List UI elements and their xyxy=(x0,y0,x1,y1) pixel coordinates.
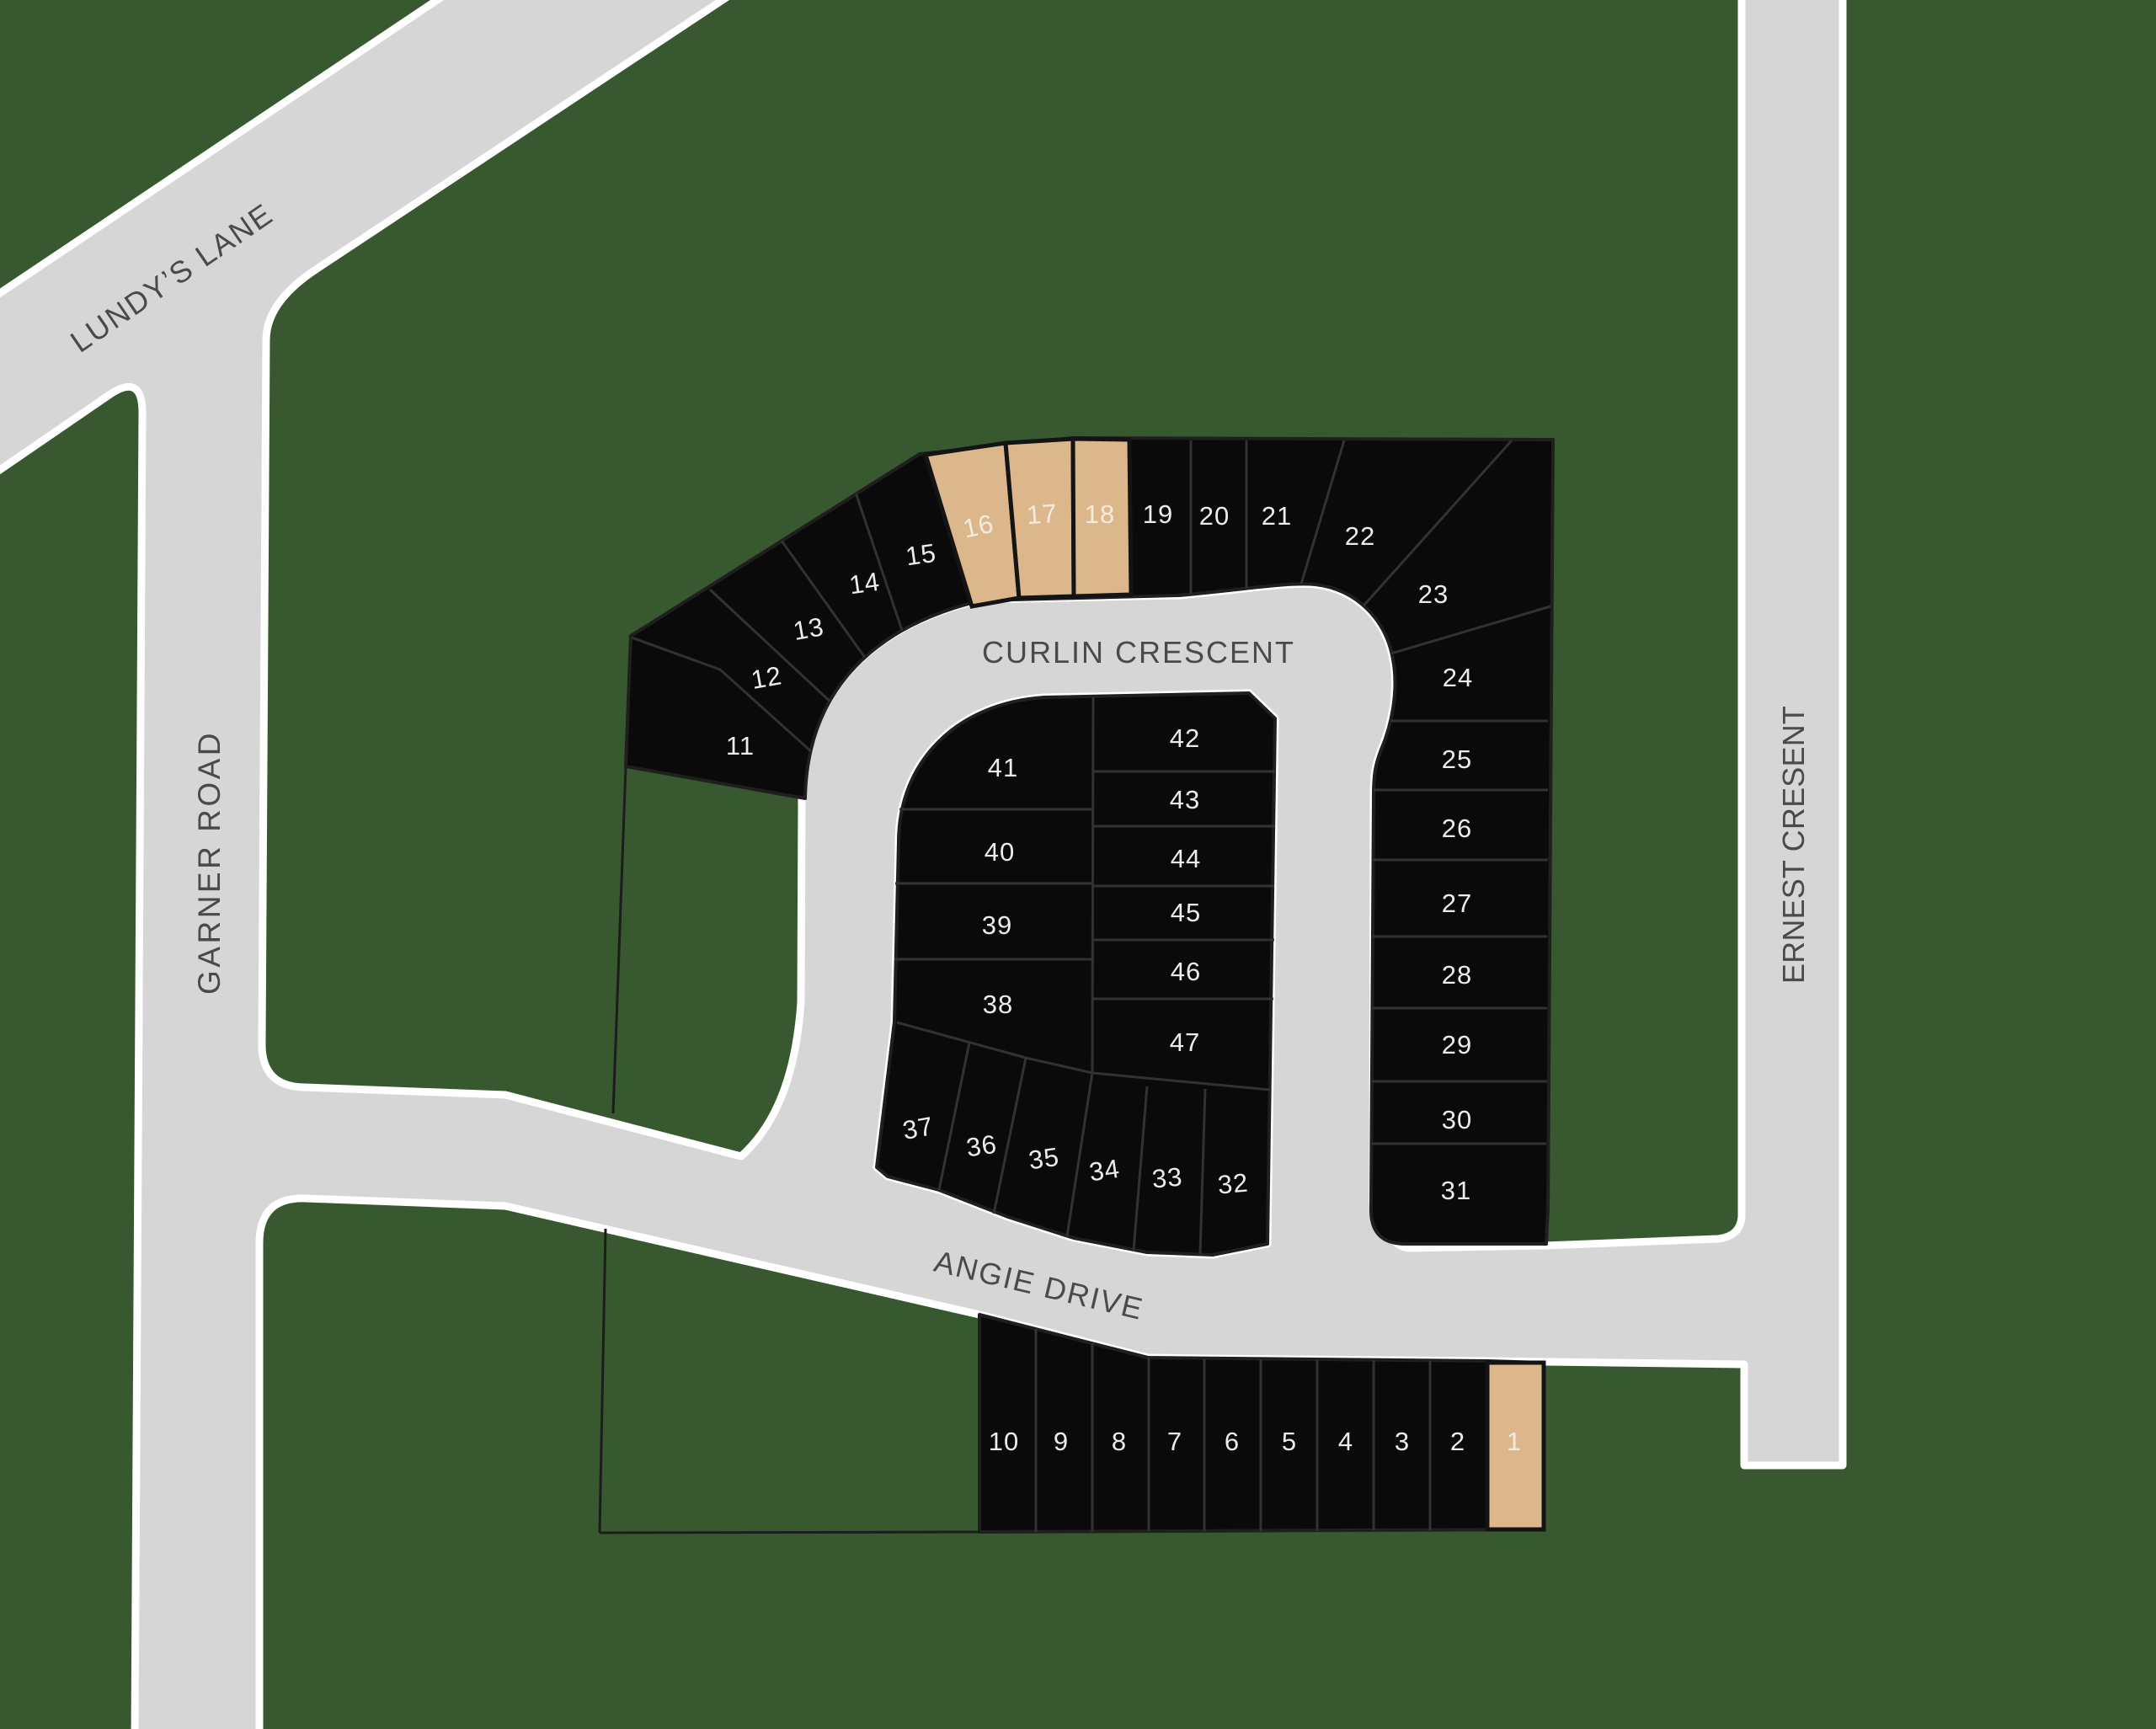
svg-text:4: 4 xyxy=(1338,1427,1353,1456)
svg-text:44: 44 xyxy=(1171,844,1201,873)
svg-text:12: 12 xyxy=(749,660,784,695)
svg-text:36: 36 xyxy=(964,1129,999,1163)
svg-text:7: 7 xyxy=(1167,1427,1182,1456)
svg-text:14: 14 xyxy=(847,567,882,600)
svg-text:33: 33 xyxy=(1150,1162,1183,1194)
svg-text:28: 28 xyxy=(1442,960,1472,990)
svg-text:9: 9 xyxy=(1054,1427,1069,1456)
svg-text:CURLIN CRESCENT: CURLIN CRESCENT xyxy=(982,635,1295,670)
svg-text:37: 37 xyxy=(900,1111,936,1145)
svg-text:17: 17 xyxy=(1026,499,1059,530)
svg-text:30: 30 xyxy=(1442,1105,1472,1134)
svg-text:19: 19 xyxy=(1143,499,1173,529)
svg-text:1: 1 xyxy=(1507,1427,1522,1456)
svg-text:39: 39 xyxy=(982,910,1012,940)
svg-text:21: 21 xyxy=(1262,501,1292,531)
svg-text:24: 24 xyxy=(1443,663,1473,692)
svg-text:47: 47 xyxy=(1170,1027,1200,1057)
svg-text:38: 38 xyxy=(983,990,1013,1019)
svg-text:45: 45 xyxy=(1171,898,1201,927)
svg-text:16: 16 xyxy=(960,509,996,544)
svg-text:15: 15 xyxy=(904,538,938,572)
svg-text:18: 18 xyxy=(1085,499,1115,529)
svg-text:23: 23 xyxy=(1418,579,1449,609)
svg-text:GARNER ROAD: GARNER ROAD xyxy=(192,730,227,995)
svg-text:2: 2 xyxy=(1450,1427,1465,1456)
svg-text:35: 35 xyxy=(1027,1142,1061,1176)
svg-text:32: 32 xyxy=(1216,1168,1249,1200)
svg-text:ERNEST CRESENT: ERNEST CRESENT xyxy=(1776,706,1811,984)
svg-text:29: 29 xyxy=(1442,1030,1472,1059)
svg-text:40: 40 xyxy=(985,837,1015,867)
svg-text:26: 26 xyxy=(1442,814,1472,843)
svg-text:31: 31 xyxy=(1441,1176,1471,1205)
svg-text:11: 11 xyxy=(726,731,755,760)
svg-text:27: 27 xyxy=(1442,889,1472,918)
svg-text:20: 20 xyxy=(1199,501,1230,531)
svg-text:46: 46 xyxy=(1171,957,1201,986)
svg-text:25: 25 xyxy=(1442,744,1472,774)
svg-text:5: 5 xyxy=(1282,1427,1297,1456)
svg-text:3: 3 xyxy=(1395,1427,1410,1456)
svg-text:41: 41 xyxy=(988,753,1018,782)
svg-text:42: 42 xyxy=(1170,723,1200,753)
svg-text:6: 6 xyxy=(1225,1427,1240,1456)
svg-text:43: 43 xyxy=(1170,785,1200,814)
svg-text:22: 22 xyxy=(1345,521,1375,551)
svg-text:10: 10 xyxy=(989,1427,1019,1456)
svg-text:13: 13 xyxy=(791,611,826,646)
svg-text:34: 34 xyxy=(1087,1154,1122,1187)
svg-text:8: 8 xyxy=(1112,1427,1127,1456)
